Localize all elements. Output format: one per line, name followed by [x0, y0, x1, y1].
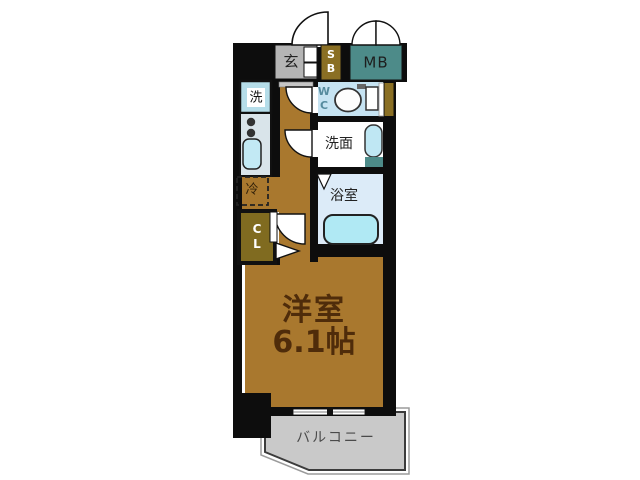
- toilet-bowl-icon: [335, 89, 361, 112]
- meter-box-label: MB: [363, 56, 388, 71]
- wall-wc-washroom: [310, 115, 383, 122]
- wall-kitchen-hall: [271, 81, 280, 177]
- balcony-label: バルコニー: [296, 431, 376, 445]
- bathroom-label: 浴室: [330, 189, 358, 203]
- wc-label: WC: [319, 85, 330, 113]
- stove-burner-2: [247, 129, 255, 137]
- washroom-counter: [365, 157, 383, 167]
- meter-box-door-left-arc: [352, 21, 376, 45]
- wall-washroom-bath: [310, 167, 383, 174]
- room-door-leaf: [270, 212, 277, 242]
- genkan-step: [279, 82, 313, 87]
- shoe-box-label: SB: [326, 48, 337, 76]
- wall-right: [383, 82, 396, 416]
- washroom-label: 洗面: [325, 137, 353, 151]
- floorplan-page: 玄 SB MB 洗 WC 洗面 浴室 冷 CL 洋室 6.1帖 バルコニー: [0, 0, 640, 480]
- kitchen-sink-icon: [243, 139, 261, 169]
- floorplan-drawing: [0, 0, 640, 480]
- refrigerator-label: 冷: [245, 184, 258, 197]
- stove-burner-1: [247, 118, 255, 126]
- window-center-tick: [327, 407, 333, 415]
- washer-label: 洗: [249, 92, 262, 105]
- meter-box-door-right-arc: [376, 21, 400, 45]
- entrance-door-leaf-lower: [304, 63, 317, 77]
- main-room-size: 6.1帖: [272, 328, 355, 358]
- toilet-tank-icon: [366, 87, 378, 110]
- bathtub-icon: [324, 215, 378, 244]
- closet-label: CL: [251, 222, 263, 252]
- genkan-edge-line: [275, 79, 317, 82]
- wall-bottom-left-block: [233, 393, 271, 438]
- entrance-door-leaf-upper: [304, 47, 317, 62]
- washbasin-icon: [365, 125, 382, 157]
- pipe-space-slit: [379, 83, 384, 116]
- genkan-label: 玄: [283, 55, 298, 70]
- main-room-name: 洋室: [282, 296, 346, 326]
- toilet-flush-button: [357, 84, 366, 89]
- pipe-space-shaft: [385, 83, 394, 116]
- entrance-door-swing-arc: [292, 12, 328, 45]
- wall-bath-room: [310, 244, 383, 257]
